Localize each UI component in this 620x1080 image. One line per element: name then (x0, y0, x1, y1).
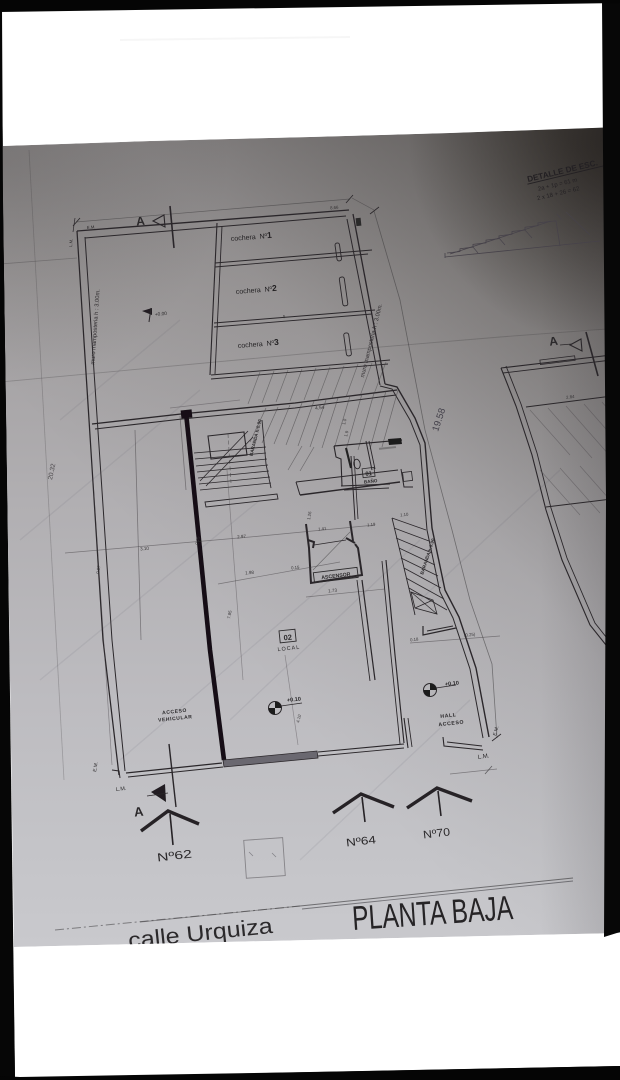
svg-text:3.10: 3.10 (140, 546, 150, 552)
svg-text:2.97: 2.97 (237, 534, 247, 540)
svg-text:1.10: 1.10 (400, 512, 409, 518)
svg-text:+0.00: +0.00 (155, 311, 168, 318)
svg-text:0.15: 0.15 (291, 565, 300, 571)
svg-text:1.41: 1.41 (318, 526, 327, 532)
svg-text:1.98: 1.98 (245, 570, 255, 576)
svg-text:1.19: 1.19 (367, 522, 376, 528)
svg-text:8.66: 8.66 (330, 205, 339, 211)
svg-text:1.73: 1.73 (328, 588, 338, 594)
svg-text:0.18: 0.18 (410, 636, 419, 642)
svg-text:02: 02 (283, 633, 292, 643)
svg-text:L.M.: L.M. (68, 239, 74, 248)
svg-text:4.54: 4.54 (315, 405, 325, 412)
svg-text:A: A (135, 214, 145, 229)
svg-text:L.M.: L.M. (116, 786, 127, 793)
svg-text:E.M.: E.M. (87, 224, 96, 230)
